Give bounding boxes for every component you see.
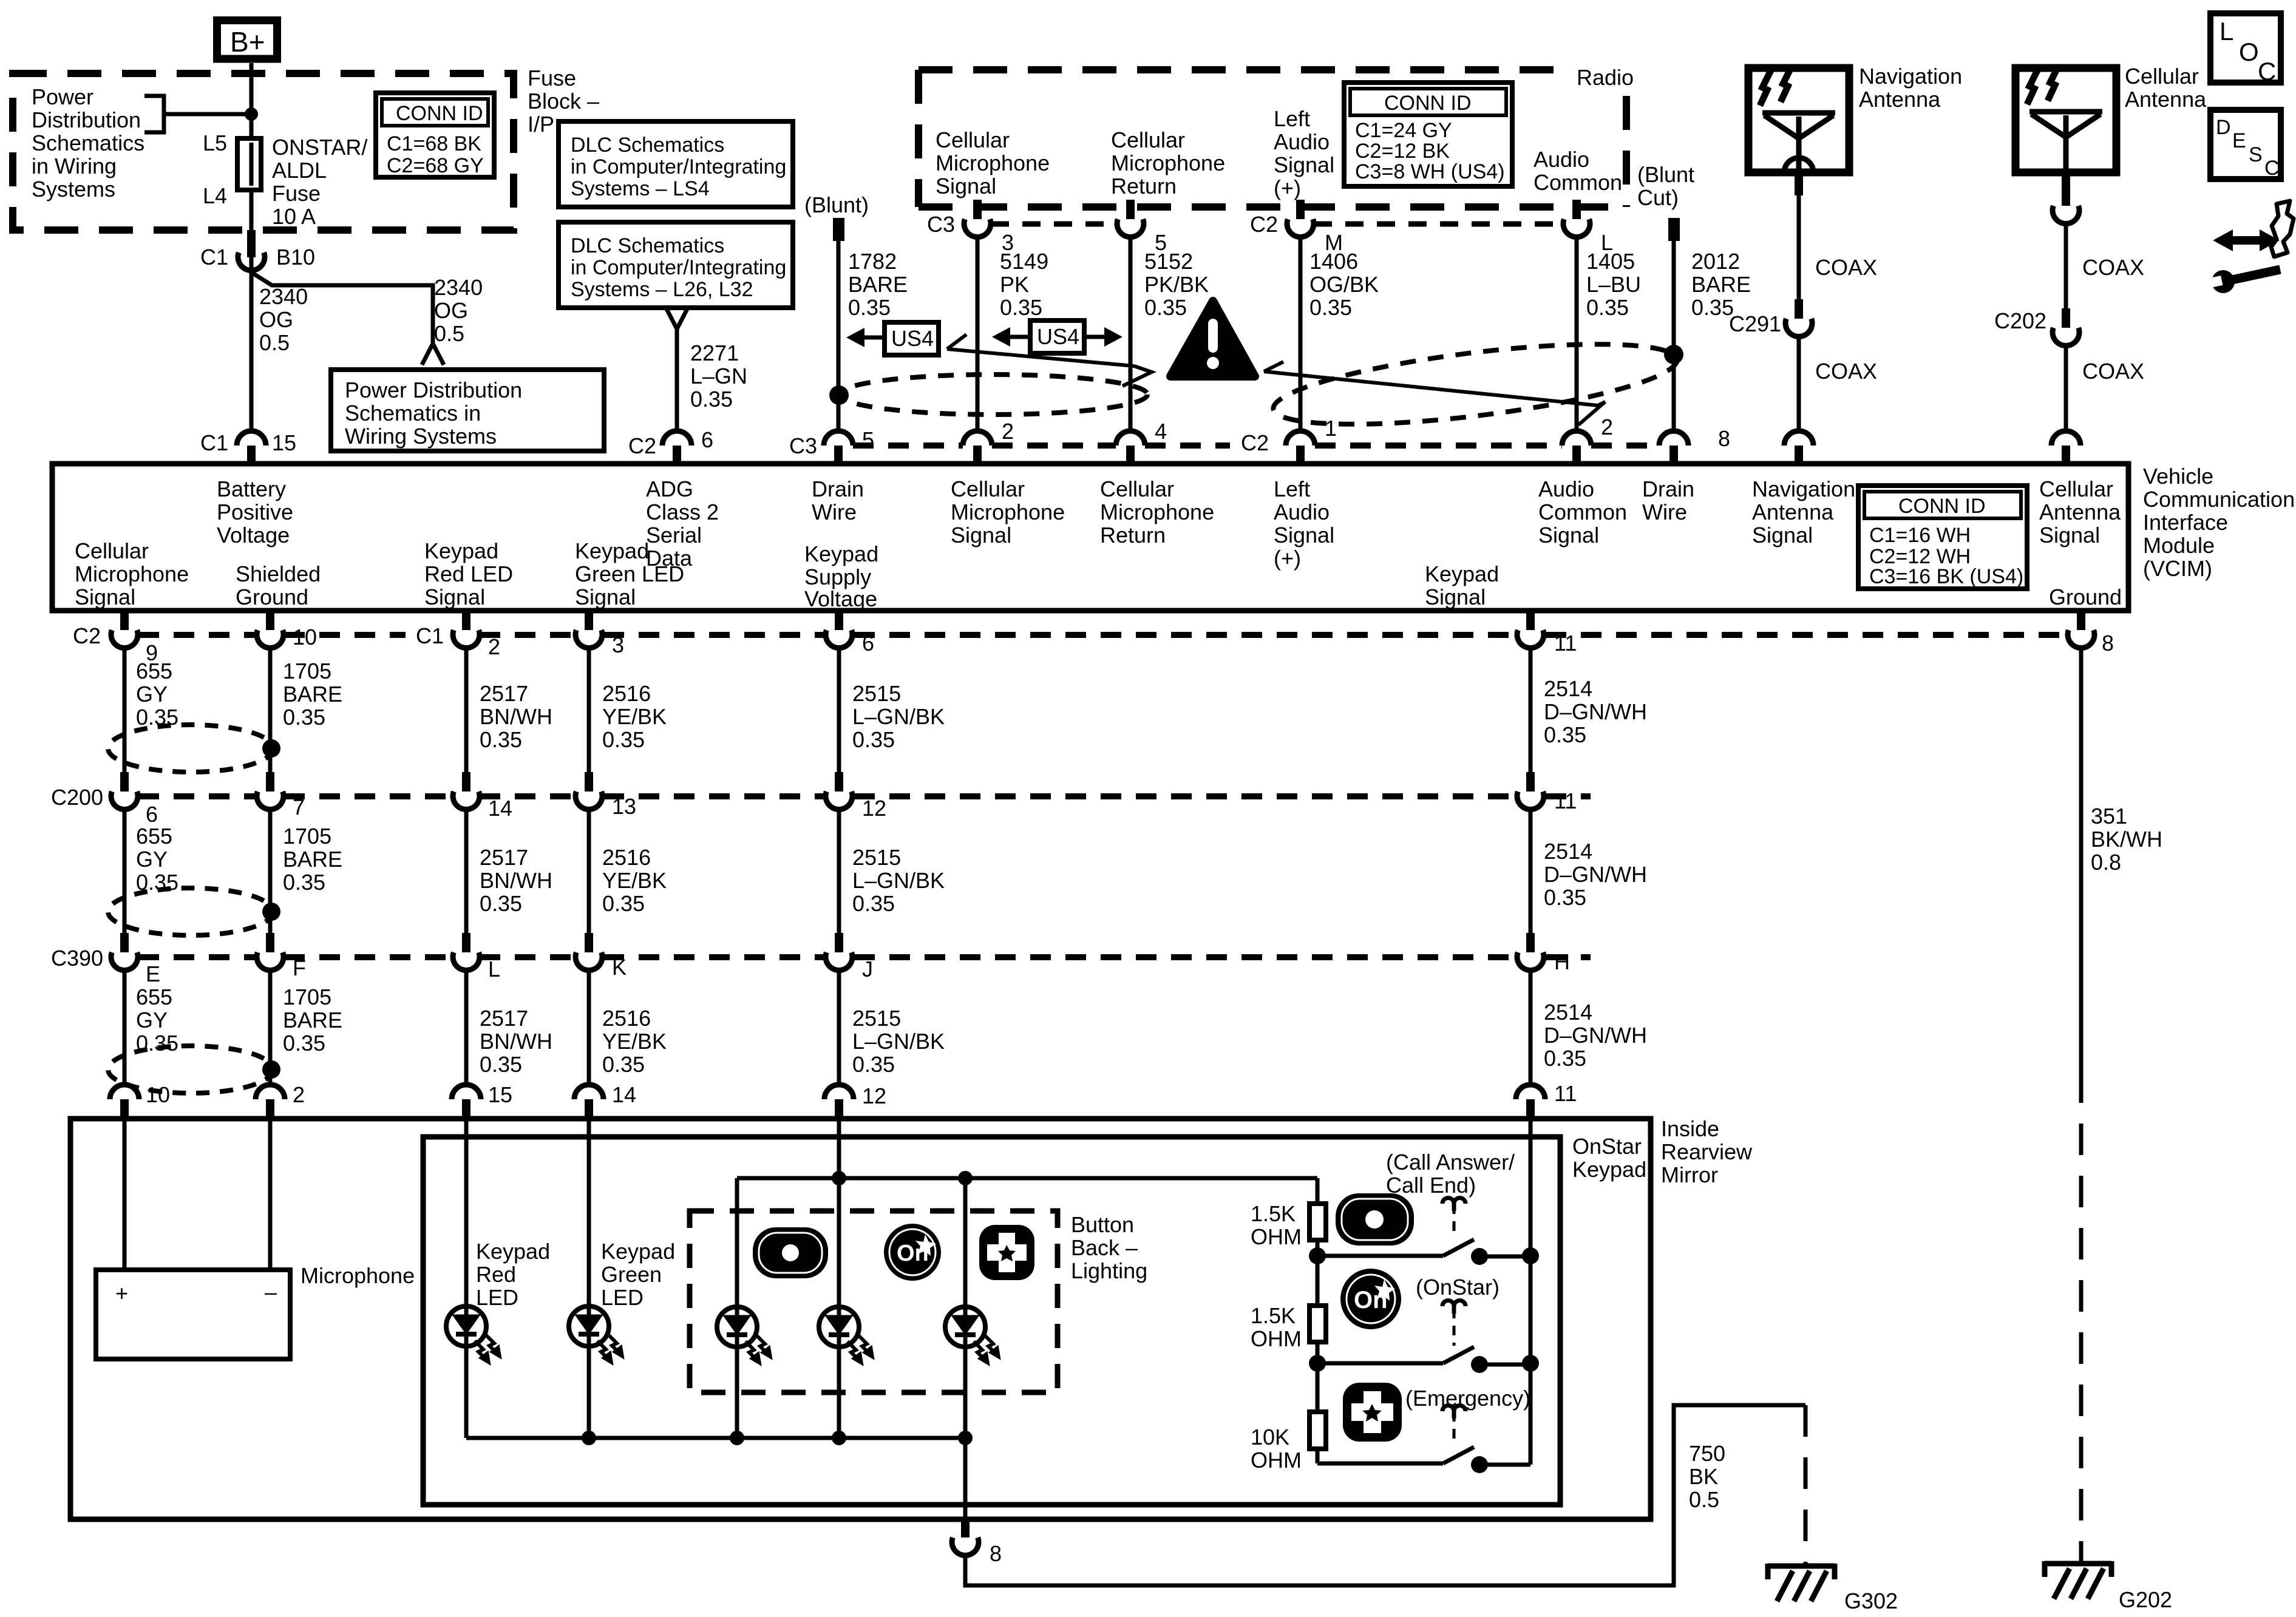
svg-text:Ground: Ground [236, 585, 308, 609]
svg-text:Microphone: Microphone [301, 1263, 415, 1288]
svg-text:(Blunt): (Blunt) [804, 192, 869, 217]
svg-text:2271: 2271 [690, 341, 739, 365]
svg-text:0.35: 0.35 [602, 727, 645, 752]
svg-text:Left: Left [1274, 476, 1310, 501]
svg-text:BK/WH: BK/WH [2091, 827, 2162, 852]
svg-text:8: 8 [2102, 631, 2114, 656]
svg-text:in Computer/Integrating: in Computer/Integrating [571, 155, 786, 178]
svg-text:C3=8 WH (US4): C3=8 WH (US4) [1355, 160, 1505, 183]
svg-text:COAX: COAX [1815, 255, 1877, 280]
svg-text:Interface: Interface [2143, 510, 2228, 535]
svg-text:0.5: 0.5 [434, 321, 464, 346]
svg-text:0.35: 0.35 [602, 1052, 645, 1077]
svg-text:0.35: 0.35 [1586, 295, 1629, 320]
svg-text:1705: 1705 [283, 985, 331, 1009]
svg-text:10K: 10K [1251, 1425, 1289, 1449]
svg-text:Power Distribution: Power Distribution [345, 378, 522, 402]
svg-text:7: 7 [293, 795, 305, 819]
svg-text:D–GN/WH: D–GN/WH [1544, 699, 1647, 724]
svg-text:E: E [146, 961, 160, 986]
svg-text:Signal: Signal [575, 585, 636, 609]
svg-text:2517: 2517 [480, 681, 528, 706]
svg-text:OG/BK: OG/BK [1309, 272, 1379, 297]
svg-text:Schematics: Schematics [32, 131, 144, 155]
svg-text:2: 2 [1002, 419, 1014, 444]
svg-text:OHM: OHM [1251, 1448, 1302, 1473]
svg-text:1705: 1705 [283, 659, 331, 683]
svg-text:Audio: Audio [1274, 129, 1330, 154]
svg-text:0.35: 0.35 [1309, 295, 1352, 320]
svg-text:2515: 2515 [852, 681, 901, 706]
svg-text:2012: 2012 [1691, 249, 1740, 274]
svg-text:DLC Schematics: DLC Schematics [571, 234, 724, 257]
svg-text:0.8: 0.8 [2091, 850, 2121, 875]
svg-text:COAX: COAX [2082, 359, 2144, 384]
svg-text:C2: C2 [1241, 430, 1269, 455]
svg-text:ADG: ADG [646, 476, 693, 501]
svg-text:CONN ID: CONN ID [396, 102, 483, 125]
svg-text:Cellular: Cellular [75, 538, 149, 563]
svg-text:655: 655 [136, 985, 172, 1009]
svg-text:BARE: BARE [283, 682, 342, 707]
svg-text:Cellular: Cellular [951, 476, 1025, 501]
svg-text:Signal: Signal [1425, 585, 1486, 609]
svg-text:Keypad: Keypad [424, 538, 498, 563]
svg-text:0.35: 0.35 [136, 705, 178, 730]
svg-text:S: S [2249, 143, 2263, 166]
svg-text:0.35: 0.35 [283, 705, 325, 730]
svg-text:YE/BK: YE/BK [602, 704, 667, 729]
svg-text:Systems – LS4: Systems – LS4 [571, 177, 710, 200]
svg-text:11: 11 [1554, 1081, 1577, 1106]
svg-text:BN/WH: BN/WH [480, 704, 552, 729]
svg-text:DLC Schematics: DLC Schematics [571, 134, 724, 157]
svg-text:D–GN/WH: D–GN/WH [1544, 1023, 1647, 1048]
svg-text:L5: L5 [203, 131, 227, 155]
svg-text:G202: G202 [2119, 1587, 2172, 1612]
svg-text:2: 2 [1601, 415, 1613, 439]
svg-text:Button: Button [1071, 1212, 1134, 1237]
svg-text:3: 3 [612, 632, 624, 657]
svg-text:Microphone: Microphone [1100, 500, 1214, 524]
svg-text:Fuse: Fuse [272, 181, 321, 206]
svg-text:LED: LED [601, 1285, 644, 1310]
svg-text:2514: 2514 [1544, 676, 1592, 701]
svg-text:OnStar: OnStar [1572, 1134, 1642, 1159]
svg-text:0.35: 0.35 [852, 727, 895, 752]
svg-text:Antenna: Antenna [2039, 500, 2121, 524]
svg-text:Common: Common [1533, 170, 1622, 195]
svg-text:2: 2 [488, 634, 500, 659]
svg-text:Green LED: Green LED [575, 561, 684, 586]
svg-text:Signal: Signal [951, 523, 1011, 547]
svg-text:C: C [2258, 57, 2276, 86]
svg-text:C1=68 BK: C1=68 BK [387, 132, 481, 155]
svg-text:C1: C1 [200, 245, 228, 269]
svg-text:Red LED: Red LED [424, 561, 513, 586]
svg-text:10: 10 [293, 625, 317, 649]
svg-text:GY: GY [136, 1008, 168, 1032]
svg-text:Voltage: Voltage [217, 523, 290, 547]
svg-text:Wire: Wire [812, 500, 857, 524]
svg-text:YE/BK: YE/BK [602, 1029, 667, 1054]
svg-text:(VCIM): (VCIM) [2143, 556, 2212, 581]
svg-text:0.35: 0.35 [690, 387, 733, 412]
svg-text:0.5: 0.5 [1689, 1487, 1719, 1512]
svg-text:C1: C1 [416, 623, 444, 648]
svg-text:0.35: 0.35 [852, 1052, 895, 1077]
svg-text:Supply: Supply [804, 564, 871, 589]
svg-text:COAX: COAX [2082, 255, 2144, 280]
svg-text:Audio: Audio [1538, 476, 1594, 501]
svg-text:Common: Common [1538, 500, 1627, 524]
svg-text:2515: 2515 [852, 845, 901, 870]
svg-text:Wire: Wire [1642, 500, 1687, 524]
svg-text:Keypad: Keypad [1425, 561, 1499, 586]
svg-text:Shielded: Shielded [236, 561, 321, 586]
svg-text:6: 6 [146, 802, 158, 827]
svg-text:C200: C200 [51, 785, 103, 810]
svg-text:LED: LED [476, 1285, 518, 1310]
svg-text:0.35: 0.35 [480, 727, 522, 752]
svg-text:C3: C3 [927, 212, 955, 237]
svg-text:0.35: 0.35 [283, 1031, 325, 1056]
svg-text:0.35: 0.35 [1000, 295, 1042, 320]
svg-text:5149: 5149 [1000, 249, 1048, 274]
svg-text:Rearview: Rearview [1661, 1139, 1753, 1164]
svg-text:C3=16 BK (US4): C3=16 BK (US4) [1869, 565, 2023, 588]
svg-text:2516: 2516 [602, 681, 651, 706]
svg-text:Left: Left [1274, 106, 1310, 131]
svg-text:0.35: 0.35 [852, 891, 895, 916]
svg-text:OHM: OHM [1251, 1224, 1302, 1249]
svg-text:11: 11 [1554, 788, 1577, 813]
svg-text:(+): (+) [1274, 546, 1301, 571]
svg-text:(Blunt: (Blunt [1637, 162, 1694, 187]
svg-text:Signal: Signal [1274, 523, 1334, 547]
svg-text:10 A: 10 A [272, 204, 316, 229]
svg-text:2514: 2514 [1544, 839, 1592, 864]
svg-text:C1: C1 [200, 430, 228, 455]
svg-text:12: 12 [862, 1083, 886, 1108]
svg-text:Signal: Signal [1752, 523, 1813, 547]
svg-text:US4: US4 [891, 326, 934, 351]
svg-text:(+): (+) [1274, 175, 1301, 200]
svg-text:Cellular: Cellular [936, 127, 1010, 152]
svg-text:Module: Module [2143, 533, 2215, 558]
svg-text:Cellular: Cellular [1100, 476, 1174, 501]
svg-text:13: 13 [612, 794, 636, 819]
svg-text:2516: 2516 [602, 1006, 651, 1031]
svg-text:2340: 2340 [259, 284, 308, 309]
svg-text:GY: GY [136, 682, 168, 707]
svg-text:Inside: Inside [1661, 1116, 1719, 1141]
svg-text:Cellular: Cellular [1111, 127, 1185, 152]
svg-text:15: 15 [272, 430, 296, 455]
svg-text:Antenna: Antenna [2125, 87, 2207, 112]
svg-text:COAX: COAX [1815, 359, 1877, 384]
svg-text:0.35: 0.35 [1144, 295, 1187, 320]
svg-text:Navigation: Navigation [1859, 64, 1962, 89]
svg-text:–: – [265, 1280, 277, 1304]
svg-text:PK/BK: PK/BK [1144, 272, 1209, 297]
svg-text:Class 2: Class 2 [646, 500, 719, 524]
svg-text:BARE: BARE [1691, 272, 1751, 297]
svg-text:2: 2 [293, 1082, 305, 1107]
svg-text:655: 655 [136, 824, 172, 849]
svg-text:C1=16 WH: C1=16 WH [1869, 524, 1971, 547]
svg-text:Return: Return [1111, 174, 1177, 198]
svg-text:PK: PK [1000, 272, 1029, 297]
svg-text:1.5K: 1.5K [1251, 1201, 1296, 1226]
svg-text:H: H [1554, 949, 1570, 974]
svg-text:6: 6 [701, 427, 713, 452]
svg-text:Microphone: Microphone [75, 561, 189, 586]
svg-text:Microphone: Microphone [1111, 151, 1225, 175]
svg-text:D–GN/WH: D–GN/WH [1544, 862, 1647, 887]
svg-text:YE/BK: YE/BK [602, 868, 667, 893]
svg-text:2517: 2517 [480, 845, 528, 870]
svg-text:Drain: Drain [812, 476, 864, 501]
svg-text:Cut): Cut) [1637, 185, 1679, 210]
svg-text:Ground: Ground [2049, 585, 2122, 609]
svg-text:Return: Return [1100, 523, 1166, 547]
svg-text:C2: C2 [1250, 212, 1278, 237]
svg-text:11: 11 [1554, 631, 1577, 656]
svg-text:12: 12 [862, 796, 886, 821]
svg-text:L–GN: L–GN [690, 364, 747, 388]
svg-text:Signal: Signal [936, 174, 996, 198]
svg-text:Communication: Communication [2143, 487, 2295, 512]
svg-text:ONSTAR/: ONSTAR/ [272, 135, 367, 160]
svg-text:Signal: Signal [75, 585, 135, 609]
svg-text:C2: C2 [73, 623, 101, 648]
svg-text:655: 655 [136, 659, 172, 683]
svg-text:OG: OG [259, 307, 293, 332]
svg-text:Systems: Systems [32, 177, 115, 202]
svg-text:Block –: Block – [528, 89, 599, 114]
svg-text:0.35: 0.35 [1544, 1046, 1586, 1071]
svg-text:D: D [2216, 116, 2231, 139]
svg-text:Navigation: Navigation [1752, 476, 1855, 501]
svg-text:CONN ID: CONN ID [1384, 92, 1472, 115]
svg-text:5152: 5152 [1144, 249, 1193, 274]
svg-text:Distribution: Distribution [32, 107, 141, 132]
svg-text:Microphone: Microphone [951, 500, 1065, 524]
svg-text:in Computer/Integrating: in Computer/Integrating [571, 256, 786, 279]
svg-text:C390: C390 [51, 946, 103, 971]
svg-text:Keypad: Keypad [1572, 1157, 1646, 1182]
svg-text:Positive: Positive [217, 500, 293, 524]
svg-text:Red: Red [476, 1262, 516, 1287]
svg-text:Antenna: Antenna [1859, 87, 1941, 112]
svg-text:2514: 2514 [1544, 1000, 1592, 1025]
svg-text:in Wiring: in Wiring [32, 154, 117, 178]
svg-text:+: + [115, 1281, 128, 1306]
svg-text:0.35: 0.35 [283, 870, 325, 895]
svg-text:L–GN/BK: L–GN/BK [852, 868, 945, 893]
svg-text:L–GN/BK: L–GN/BK [852, 1029, 945, 1054]
svg-text:Schematics in: Schematics in [345, 401, 481, 425]
svg-text:BARE: BARE [283, 847, 342, 872]
svg-text:0.35: 0.35 [1544, 722, 1586, 747]
svg-text:Signal: Signal [2039, 523, 2100, 547]
svg-text:Lighting: Lighting [1071, 1258, 1147, 1283]
svg-text:O: O [2239, 38, 2259, 66]
svg-text:0.35: 0.35 [602, 891, 645, 916]
svg-text:0.35: 0.35 [480, 1052, 522, 1077]
svg-text:BN/WH: BN/WH [480, 1029, 552, 1054]
svg-text:1.5K: 1.5K [1251, 1303, 1296, 1328]
svg-text:L4: L4 [203, 183, 227, 208]
svg-text:0.35: 0.35 [480, 891, 522, 916]
svg-text:C291: C291 [1729, 311, 1781, 336]
svg-text:Keypad: Keypad [601, 1239, 675, 1264]
svg-text:0.35: 0.35 [1691, 295, 1734, 320]
svg-text:1: 1 [1325, 416, 1337, 441]
svg-text:2517: 2517 [480, 1006, 528, 1031]
svg-text:OG: OG [434, 298, 468, 323]
svg-text:Signal: Signal [1538, 523, 1599, 547]
svg-text:Microphone: Microphone [936, 151, 1050, 175]
svg-text:Call End): Call End) [1386, 1173, 1476, 1198]
svg-text:Power: Power [32, 84, 93, 109]
svg-text:2516: 2516 [602, 845, 651, 870]
svg-text:L–BU: L–BU [1586, 272, 1641, 297]
svg-text:Cellular: Cellular [2125, 64, 2199, 89]
svg-text:Voltage: Voltage [804, 586, 877, 611]
svg-text:K: K [612, 955, 627, 980]
svg-text:L: L [2220, 17, 2233, 46]
svg-text:14: 14 [612, 1082, 636, 1107]
svg-text:C1=24 GY: C1=24 GY [1355, 119, 1452, 142]
svg-text:B10: B10 [276, 245, 315, 269]
svg-text:1406: 1406 [1309, 249, 1358, 274]
svg-text:CONN ID: CONN ID [1898, 495, 1986, 518]
svg-text:Green: Green [601, 1262, 662, 1287]
svg-text:0.5: 0.5 [259, 330, 290, 355]
svg-text:BARE: BARE [848, 272, 908, 297]
svg-text:15: 15 [488, 1082, 512, 1107]
svg-text:4: 4 [1155, 419, 1167, 444]
svg-text:L: L [488, 957, 500, 981]
svg-text:Keypad: Keypad [804, 541, 878, 566]
svg-text:C202: C202 [1994, 308, 2046, 333]
svg-text:1405: 1405 [1586, 249, 1635, 274]
svg-text:Audio: Audio [1533, 147, 1589, 172]
svg-text:750: 750 [1689, 1441, 1725, 1466]
svg-text:Audio: Audio [1274, 500, 1330, 524]
svg-text:Signal: Signal [424, 585, 485, 609]
svg-text:Serial: Serial [646, 523, 702, 547]
svg-text:Antenna: Antenna [1752, 500, 1834, 524]
svg-text:C2=68 GY: C2=68 GY [387, 154, 484, 177]
svg-text:14: 14 [488, 796, 512, 821]
svg-text:Keypad: Keypad [575, 538, 649, 563]
svg-text:C2: C2 [628, 433, 656, 458]
svg-text:Systems – L26, L32: Systems – L26, L32 [571, 278, 753, 301]
svg-text:GY: GY [136, 847, 168, 872]
svg-text:8: 8 [1718, 426, 1730, 451]
svg-text:OHM: OHM [1251, 1326, 1302, 1351]
svg-text:Keypad: Keypad [476, 1239, 550, 1264]
svg-text:Wiring Systems: Wiring Systems [345, 424, 497, 449]
svg-text:Battery: Battery [217, 476, 286, 501]
svg-text:J: J [862, 957, 873, 981]
svg-text:B+: B+ [230, 26, 265, 58]
svg-text:6: 6 [862, 631, 874, 656]
svg-text:Radio: Radio [1577, 65, 1634, 90]
svg-text:0.35: 0.35 [1544, 885, 1586, 910]
svg-text:US4: US4 [1037, 324, 1079, 349]
svg-text:8: 8 [990, 1541, 1002, 1566]
svg-text:BN/WH: BN/WH [480, 868, 552, 893]
svg-text:(OnStar): (OnStar) [1416, 1275, 1500, 1300]
svg-text:Back –: Back – [1071, 1235, 1138, 1260]
svg-text:BK: BK [1689, 1464, 1718, 1489]
svg-text:2515: 2515 [852, 1006, 901, 1031]
svg-text:Signal: Signal [1274, 152, 1334, 177]
svg-text:L–GN/BK: L–GN/BK [852, 704, 945, 729]
svg-text:2340: 2340 [434, 275, 483, 300]
svg-text:Vehicle: Vehicle [2143, 464, 2213, 489]
svg-text:C2=12 BK: C2=12 BK [1355, 140, 1450, 163]
svg-text:ALDL: ALDL [272, 158, 327, 183]
svg-text:I/P: I/P [528, 112, 554, 137]
svg-text:(Call Answer/: (Call Answer/ [1386, 1150, 1515, 1175]
svg-text:Cellular: Cellular [2039, 476, 2113, 501]
svg-text:Fuse: Fuse [528, 66, 576, 90]
svg-text:BARE: BARE [283, 1008, 342, 1032]
svg-text:C3: C3 [789, 433, 817, 458]
svg-text:G302: G302 [1844, 1588, 1898, 1613]
svg-text:10: 10 [146, 1082, 170, 1107]
svg-text:(Emergency): (Emergency) [1405, 1386, 1530, 1411]
svg-text:1705: 1705 [283, 824, 331, 849]
svg-text:1782: 1782 [848, 249, 897, 274]
svg-text:F: F [293, 955, 306, 980]
svg-text:E: E [2232, 129, 2246, 152]
svg-text:0.35: 0.35 [848, 295, 891, 320]
svg-text:C: C [2264, 157, 2280, 180]
svg-text:Drain: Drain [1642, 476, 1694, 501]
svg-text:351: 351 [2091, 804, 2127, 829]
svg-text:Mirror: Mirror [1661, 1162, 1718, 1187]
